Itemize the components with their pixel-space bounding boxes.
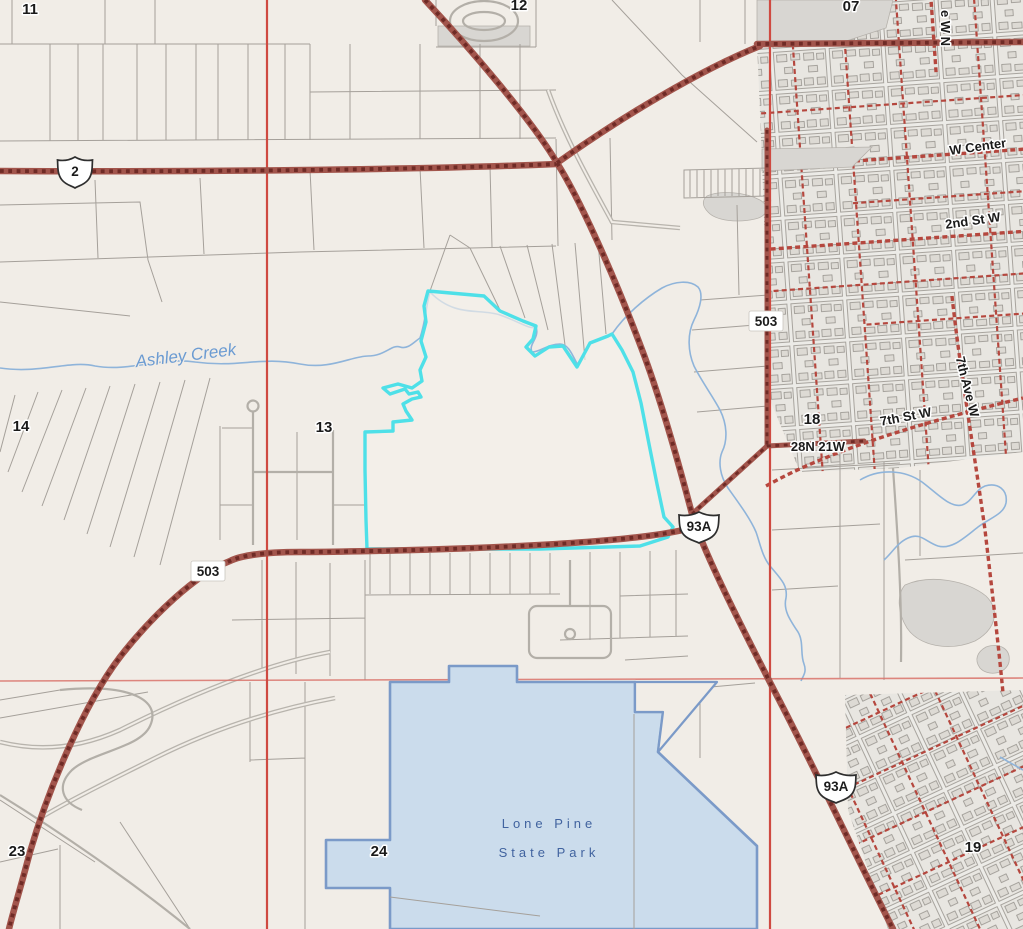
503-marker-west: 503 <box>191 561 225 581</box>
section-label-18: 18 <box>804 411 821 428</box>
section-label-12: 12 <box>511 0 528 14</box>
svg-text:503: 503 <box>197 564 220 579</box>
lone-pine-state-park[interactable] <box>326 666 757 929</box>
svg-text:93A: 93A <box>824 779 849 794</box>
svg-text:503: 503 <box>755 314 778 329</box>
section-label-19: 19 <box>965 839 982 856</box>
section-label-23: 23 <box>9 843 26 860</box>
park-label-line2: State Park <box>499 845 600 860</box>
section-label-14: 14 <box>13 418 30 435</box>
section-label-13: 13 <box>316 419 333 436</box>
503-marker-north: 503 <box>749 311 783 331</box>
section-label-24: 24 <box>371 843 388 860</box>
township-range-label: 28N 21W <box>791 439 846 454</box>
map-canvas[interactable]: 11 12 07 14 13 18 23 24 19 28N 21W W Cen… <box>0 0 1023 929</box>
svg-text:93A: 93A <box>687 519 712 534</box>
street-label-ave-w-n: e W N <box>938 10 953 46</box>
map-viewport[interactable]: 11 12 07 14 13 18 23 24 19 28N 21W W Cen… <box>0 0 1023 929</box>
park-label-line1: Lone Pine <box>502 816 597 831</box>
section-label-07: 07 <box>843 0 860 15</box>
section-label-11: 11 <box>22 1 38 18</box>
svg-text:2: 2 <box>71 164 79 179</box>
